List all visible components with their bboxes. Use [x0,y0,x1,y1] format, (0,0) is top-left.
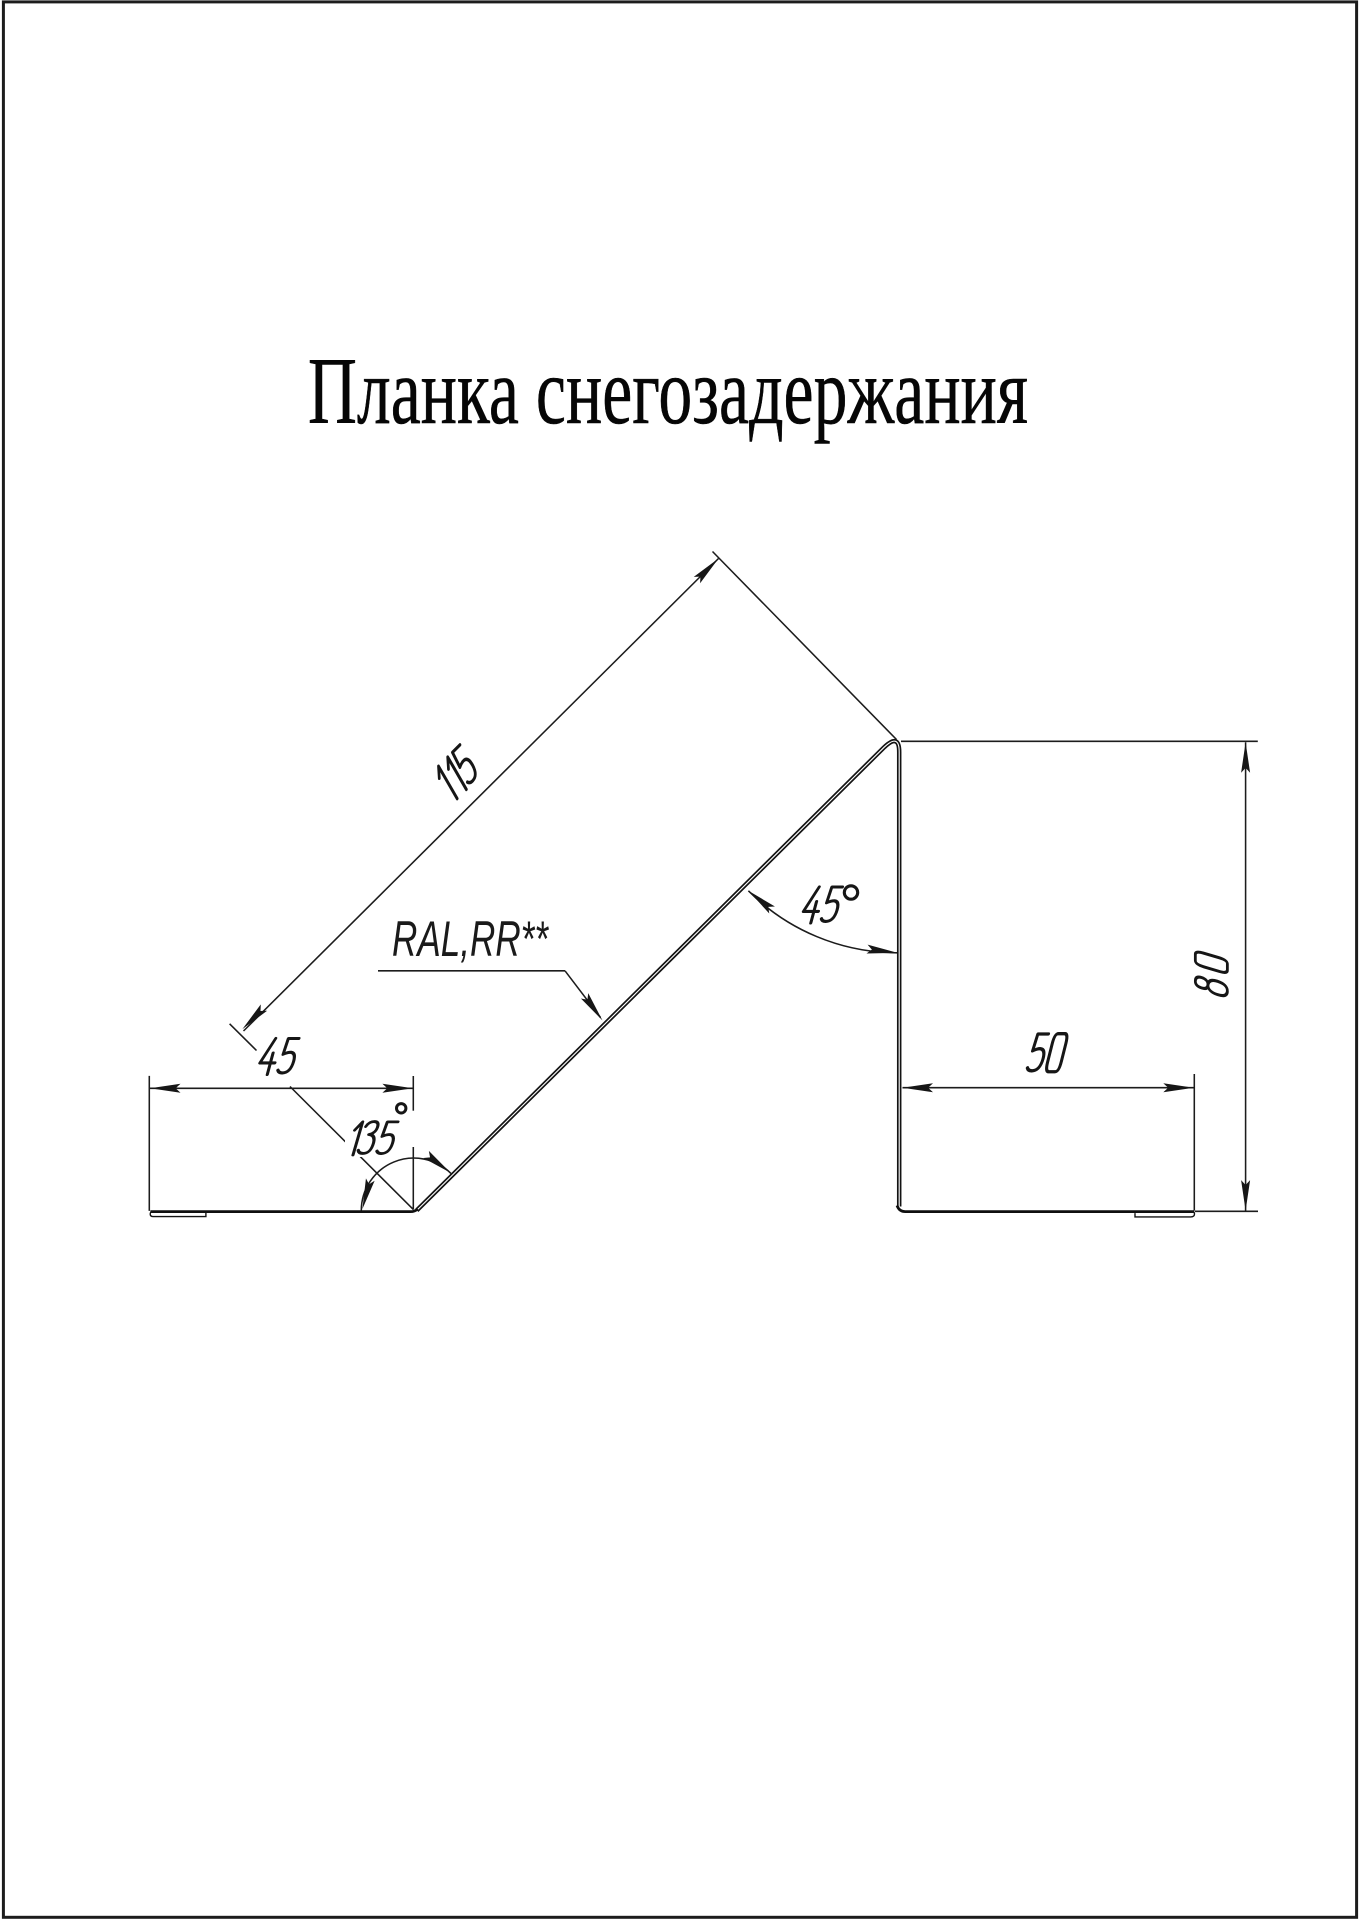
svg-text:RAL,RR**: RAL,RR** [392,911,549,967]
svg-text:Планка снегозадержания: Планка снегозадержания [308,338,1028,444]
